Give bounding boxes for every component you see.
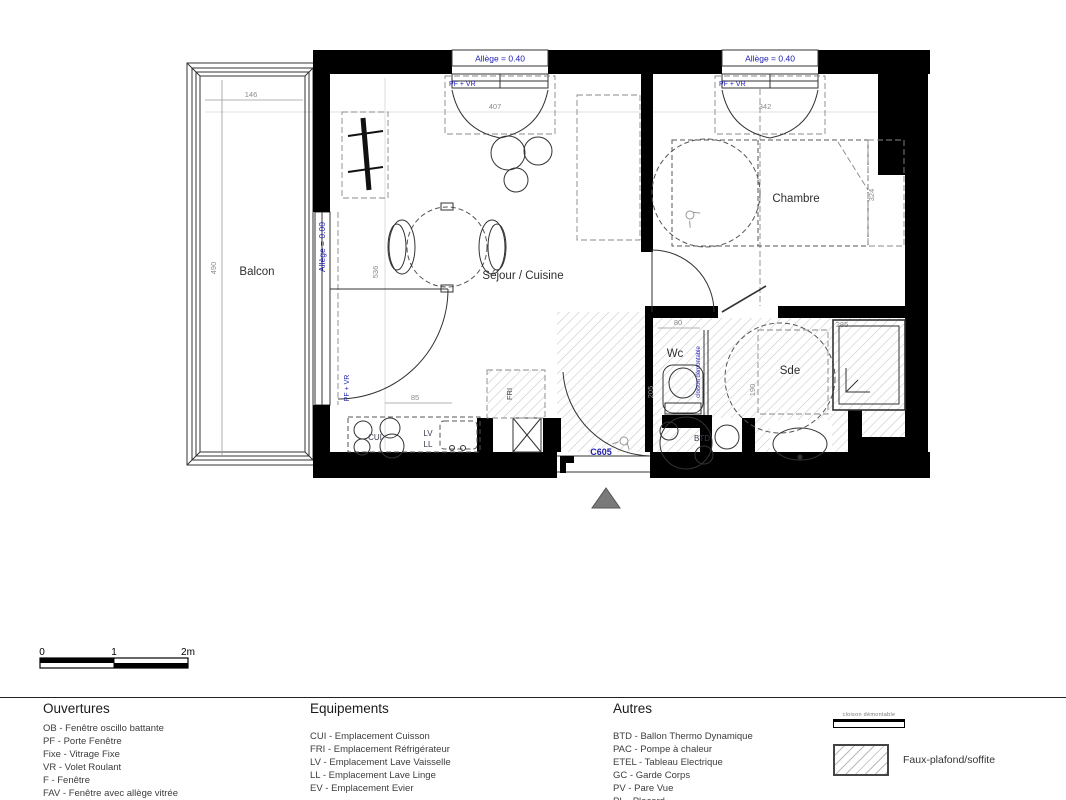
legend-cloison-label: cloison démontable [833,712,905,718]
legend-item: PL - Placard [613,795,753,800]
window-sejour: Allège = 0.40 PF + VR 407 [445,50,555,138]
lv-label: LV [423,429,433,438]
legend-autres-title: Autres [613,701,753,716]
balcony-door: Allège = 0.00 PF + VR [313,204,448,413]
window-chambre-type-label: PF + VR [719,81,746,88]
balcony-railing [187,63,318,465]
wc-label: Wc [667,348,684,360]
legend-equipements-title: Equipements [310,701,451,716]
legend-item: FAV - Fenêtre avec allège vitrée [43,787,178,800]
sde-label: Sde [780,365,800,377]
balcony-width-dim: 146 [245,90,258,99]
sejour-label: Séjour / Cuisine [482,270,563,282]
wc-width-dim: 80 [674,318,682,327]
kitchen-counter: CUI LV LL 85 [348,393,480,458]
sde-corridor-dim: 190 [748,384,757,397]
cloison-label: cloison démontable [696,345,702,397]
btd-label: BTD [694,434,710,443]
kitchen-dim: 85 [411,393,419,402]
scale-zero: 0 [39,647,45,658]
window-sejour-width-dim: 407 [489,102,502,111]
balcony-door-allege-label: Allège = 0.00 [317,222,327,272]
fri-label: FRI [505,388,514,400]
balcony-depth-dim: 490 [209,262,218,275]
legend-item: PF - Porte Fenêtre [43,735,178,748]
entry-door-code: C605 [590,447,612,457]
scale-bar: 0 1 2m [39,647,195,668]
chambre-depth-dim: 324 [867,189,876,202]
wc-depth-dim: 205 [646,386,655,399]
balcony-door-type-label: PF + VR [344,375,351,402]
cui-label: CUI [368,433,382,442]
sde-width-dim: 285 [836,320,849,329]
legend-item: PV - Pare Vue [613,782,753,795]
balcony-label: Balcon [239,266,274,278]
floor-plan-drawing: 146 490 Balcon [0,0,1066,692]
window-chambre: Allège = 0.40 PF + VR 342 [715,50,825,138]
turning-circle-chambre [652,139,760,247]
window-chambre-width-dim: 342 [759,102,772,111]
legend-item: BTD - Ballon Thermo Dynamique [613,730,753,743]
legend-item: EV - Emplacement Evier [310,782,451,795]
sde-door [722,286,766,312]
chambre-door [652,250,714,312]
ll-label: LL [424,440,433,449]
window-sejour-allege-label: Allège = 0.40 [475,54,525,64]
legend-item: VR - Volet Roulant [43,761,178,774]
legend-ouvertures: Ouvertures OB - Fenêtre oscillo battante… [43,701,178,800]
legend-item: ETEL - Tableau Electrique [613,756,753,769]
legend-item: CUI - Emplacement Cuisson [310,730,451,743]
legend-item: PAC - Pompe à chaleur [613,743,753,756]
sejour-depth-dim: 536 [371,266,380,279]
faux-plafond-symbol [833,744,889,776]
legend-item: LL - Emplacement Lave Linge [310,769,451,782]
scale-two: 2m [181,647,195,658]
scale-one: 1 [111,647,117,658]
floor-plan-page: 146 490 Balcon [0,0,1066,800]
legend-ouvertures-title: Ouvertures [43,701,178,716]
legend-divider [0,697,1066,698]
legend-item: GC - Garde Corps [613,769,753,782]
legend-item: F - Fenêtre [43,774,178,787]
chambre-label: Chambre [772,193,819,205]
vent-shaft [513,418,541,452]
placard-outline [577,95,640,240]
legend-faux-plafond-label: Faux-plafond/soffite [903,754,995,766]
legend-item: OB - Fenêtre oscillo battante [43,722,178,735]
legend-symbols: cloison démontable Faux-plafond/soffite [833,712,1063,776]
coat-rack [342,112,388,198]
accessibility-icon-chambre [681,206,703,228]
window-sejour-type-label: PF + VR [449,81,476,88]
legend-autres: Autres BTD - Ballon Thermo Dynamique PAC… [613,701,753,800]
legend-item: Fixe - Vitrage Fixe [43,748,178,761]
entry-marker [592,488,620,508]
cloison-symbol [833,719,905,728]
legend-equipements: Equipements CUI - Emplacement Cuisson FR… [310,701,451,795]
window-chambre-allege-label: Allège = 0.40 [745,54,795,64]
pendant-lights [491,136,552,192]
legend-item: FRI - Emplacement Réfrigérateur [310,743,451,756]
legend-item: LV - Emplacement Lave Vaisselle [310,756,451,769]
